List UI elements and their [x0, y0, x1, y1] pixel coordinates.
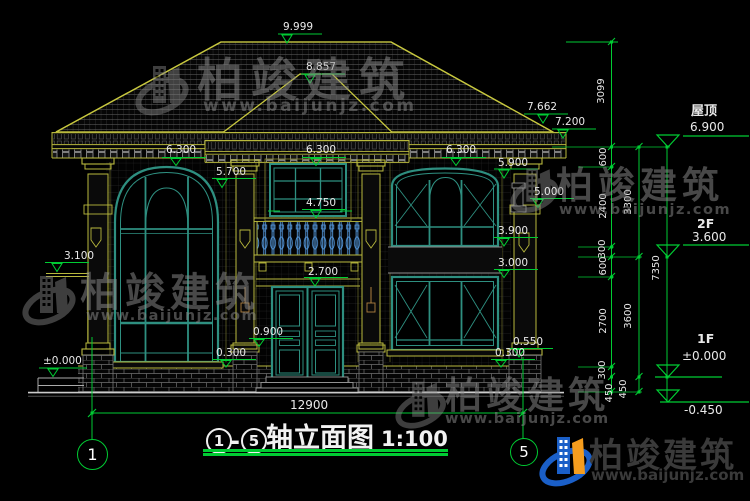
axis-bubble-5: 5: [510, 438, 538, 466]
elev-0300-right: 0.300: [495, 348, 525, 359]
watermark-4-company: 柏竣建筑: [445, 377, 609, 414]
level-roof-elev: 6.900: [690, 121, 724, 133]
level-2f-name: 2F: [697, 218, 714, 231]
level-foundation-elev: -0.450: [684, 404, 723, 416]
watermark-2-company: 柏竣建筑: [556, 167, 724, 204]
chain-450-b: 450: [619, 379, 629, 398]
chain-3600: 3600: [624, 303, 634, 328]
elev-0550: 0.550: [513, 337, 543, 348]
elev-0000-left: ±0.000: [43, 356, 82, 367]
title-underline-bottom: [203, 453, 448, 456]
entrance-steps: [256, 377, 358, 393]
elev-7662: 7.662: [527, 102, 557, 113]
level-2f-elev: 3.600: [692, 231, 726, 243]
right-2f-arch-window: [392, 169, 498, 247]
stair-arch-window: [110, 167, 223, 368]
elev-0300-mid: 0.300: [216, 348, 246, 359]
elev-2700: 2.700: [308, 267, 338, 278]
watermark-3-website: www.baijunjz.com: [86, 309, 258, 324]
elev-3900: 3.900: [498, 226, 528, 237]
title-underline-top: [203, 449, 448, 452]
dim-12900: 12900: [290, 399, 328, 411]
chain-7350: 7350: [652, 255, 662, 280]
elev-6300-mid: 6.300: [306, 145, 336, 156]
elevation-sheet: 9.9998.8577.6627.2006.3006.3006.3005.900…: [0, 0, 750, 501]
drawing-scale: 1:100: [381, 429, 448, 450]
level-1f-name: 1F: [697, 333, 714, 346]
elev-4750: 4.750: [306, 198, 336, 209]
chain-3099: 3099: [597, 78, 607, 103]
elev-3000: 3.000: [498, 258, 528, 269]
elev-7200: 7.200: [555, 117, 585, 128]
brand-website: www.baijunjz.com: [591, 468, 744, 483]
chain-600-b: 600: [599, 256, 609, 275]
chain-2700: 2700: [599, 308, 609, 333]
watermark-logo-3: [20, 276, 77, 329]
dimension-chains: [552, 38, 670, 402]
elev-5700: 5.700: [216, 167, 246, 178]
watermark-4-website: www.baijunjz.com: [445, 412, 609, 427]
watermark-3-company: 柏竣建筑: [80, 273, 260, 313]
axis-bubble-1: 1: [77, 439, 108, 470]
watermark-2-website: www.baijunjz.com: [559, 203, 731, 218]
elev-3100: 3.100: [64, 251, 94, 262]
brand-logo: [537, 437, 594, 490]
elev-9999: 9.999: [283, 22, 313, 33]
elev-5900: 5.900: [498, 158, 528, 169]
drawing-title: 轴立面图: [266, 425, 374, 452]
watermark-1-website: www.baijunjz.com: [203, 98, 417, 115]
elev-6300-right: 6.300: [446, 145, 476, 156]
left-steps: [38, 378, 84, 393]
elev-0900: 0.900: [253, 327, 283, 338]
floor-spandrel-band: [388, 247, 502, 273]
balcony-window: [265, 159, 351, 221]
level-1f-elev: ±0.000: [682, 350, 726, 362]
right-1f-window: [387, 277, 503, 356]
level-roof-name: 屋顶: [691, 105, 717, 118]
elev-6300-left: 6.300: [166, 145, 196, 156]
